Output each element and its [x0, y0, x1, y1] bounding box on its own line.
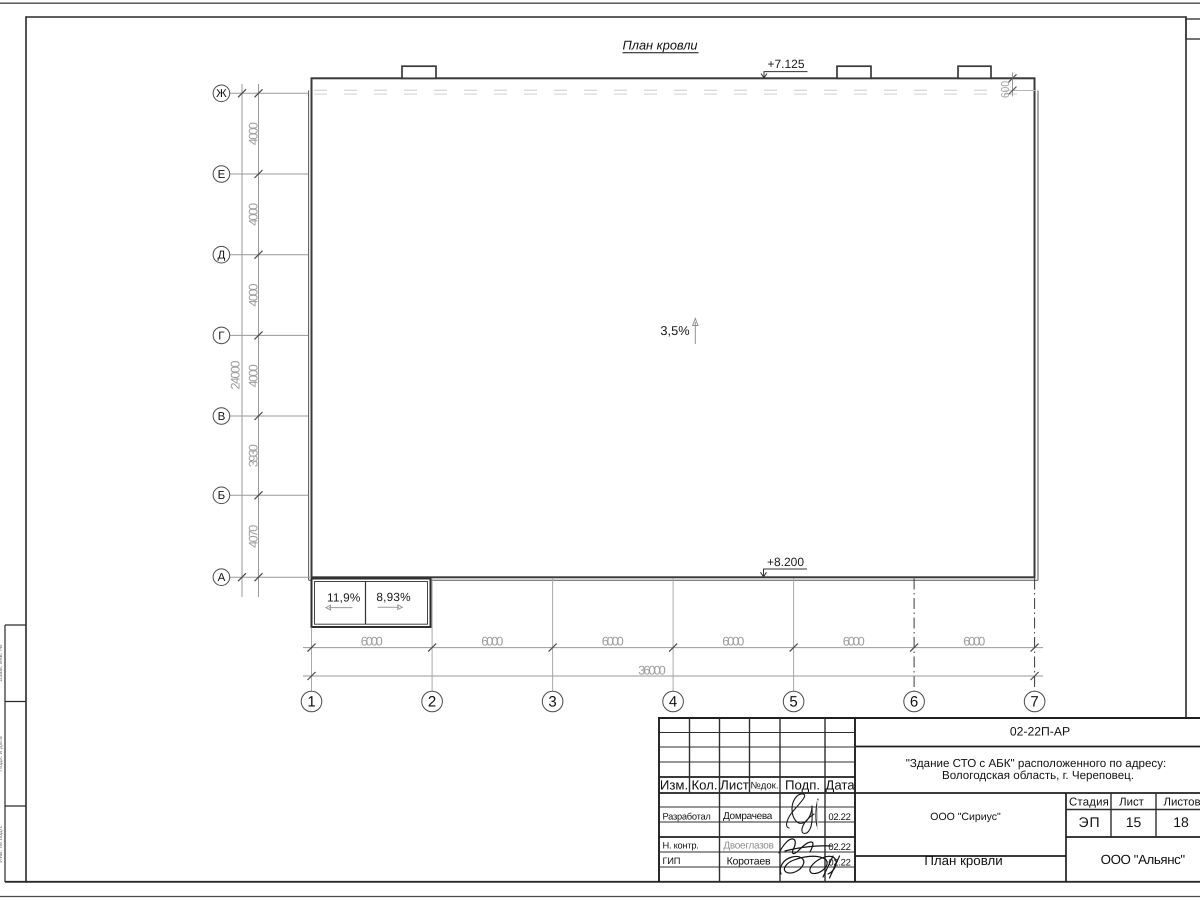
svg-text:02.22: 02.22 — [828, 842, 850, 853]
svg-text:Е: Е — [218, 169, 226, 181]
svg-text:План кровли: План кровли — [924, 853, 1002, 868]
svg-text:600: 600 — [1000, 81, 1012, 98]
svg-text:02.22: 02.22 — [828, 812, 850, 823]
svg-text:Взам. инв. №: Взам. инв. № — [0, 644, 4, 682]
svg-text:Н. контр.: Н. контр. — [663, 841, 699, 851]
svg-text:6000: 6000 — [602, 634, 624, 648]
svg-text:Лист: Лист — [720, 778, 749, 793]
svg-text:ООО "Сириус": ООО "Сириус" — [930, 811, 1001, 823]
svg-text:8,93%: 8,93% — [376, 590, 411, 604]
svg-text:24000: 24000 — [229, 361, 243, 390]
svg-text:6000: 6000 — [361, 634, 383, 648]
svg-text:+7.125: +7.125 — [767, 57, 804, 71]
svg-text:Подп.: Подп. — [785, 778, 820, 793]
svg-text:Двоеглазов: Двоеглазов — [723, 841, 773, 852]
svg-text:Инв. № подл.: Инв. № подл. — [0, 825, 4, 863]
svg-text:Разработал: Разработал — [663, 811, 711, 821]
svg-text:План кровли: План кровли — [622, 38, 697, 53]
svg-text:Б: Б — [218, 490, 226, 502]
svg-text:6000: 6000 — [843, 634, 865, 648]
svg-text:Коротаев: Коротаев — [727, 855, 771, 867]
svg-text:15: 15 — [1126, 814, 1142, 830]
svg-text:Д: Д — [218, 250, 226, 262]
svg-text:Г: Г — [218, 330, 225, 342]
svg-text:6000: 6000 — [481, 634, 503, 648]
svg-text:1: 1 — [307, 694, 315, 711]
svg-text:4000: 4000 — [247, 122, 261, 145]
svg-text:+8.200: +8.200 — [767, 555, 804, 569]
svg-text:02-22П-АР: 02-22П-АР — [1010, 725, 1070, 739]
svg-text:2: 2 — [428, 694, 436, 711]
svg-text:18: 18 — [1173, 814, 1189, 830]
svg-text:4000: 4000 — [247, 284, 261, 307]
svg-text:3,5%: 3,5% — [660, 323, 689, 338]
svg-text:4070: 4070 — [247, 525, 261, 548]
svg-text:Дата: Дата — [825, 778, 855, 793]
svg-text:"Здание СТО с АБК" расположенн: "Здание СТО с АБК" расположенного по адр… — [906, 757, 1166, 770]
svg-text:11,9%: 11,9% — [327, 590, 361, 604]
svg-text:4: 4 — [669, 694, 677, 711]
svg-text:№док.: №док. — [750, 781, 778, 792]
svg-text:Вологодская область, г. Черепо: Вологодская область, г. Череповец. — [942, 769, 1134, 782]
svg-text:Лист: Лист — [1119, 796, 1145, 808]
svg-text:Листов: Листов — [1163, 796, 1200, 808]
svg-text:ЭП: ЭП — [1078, 814, 1100, 830]
svg-text:4000: 4000 — [247, 203, 261, 226]
svg-text:Изм.: Изм. — [660, 778, 688, 793]
svg-text:7: 7 — [1030, 694, 1038, 711]
svg-text:4000: 4000 — [247, 364, 261, 387]
svg-text:ООО "Альянс": ООО "Альянс" — [1101, 852, 1186, 867]
svg-text:Подп. и дата: Подп. и дата — [0, 736, 4, 772]
svg-text:6: 6 — [910, 694, 918, 711]
svg-text:Кол.: Кол. — [691, 778, 717, 793]
svg-text:ГИП: ГИП — [663, 856, 681, 866]
svg-text:Ж: Ж — [216, 88, 227, 100]
svg-text:Домрачева: Домрачева — [723, 811, 773, 822]
svg-text:5: 5 — [789, 694, 797, 711]
svg-text:36000: 36000 — [638, 663, 666, 677]
svg-text:В: В — [218, 411, 226, 423]
svg-text:3930: 3930 — [247, 444, 261, 467]
svg-text:6000: 6000 — [722, 634, 744, 648]
svg-text:Стадия: Стадия — [1069, 796, 1109, 808]
svg-text:А: А — [218, 572, 226, 584]
svg-text:3: 3 — [548, 694, 556, 711]
svg-text:6000: 6000 — [963, 634, 985, 648]
